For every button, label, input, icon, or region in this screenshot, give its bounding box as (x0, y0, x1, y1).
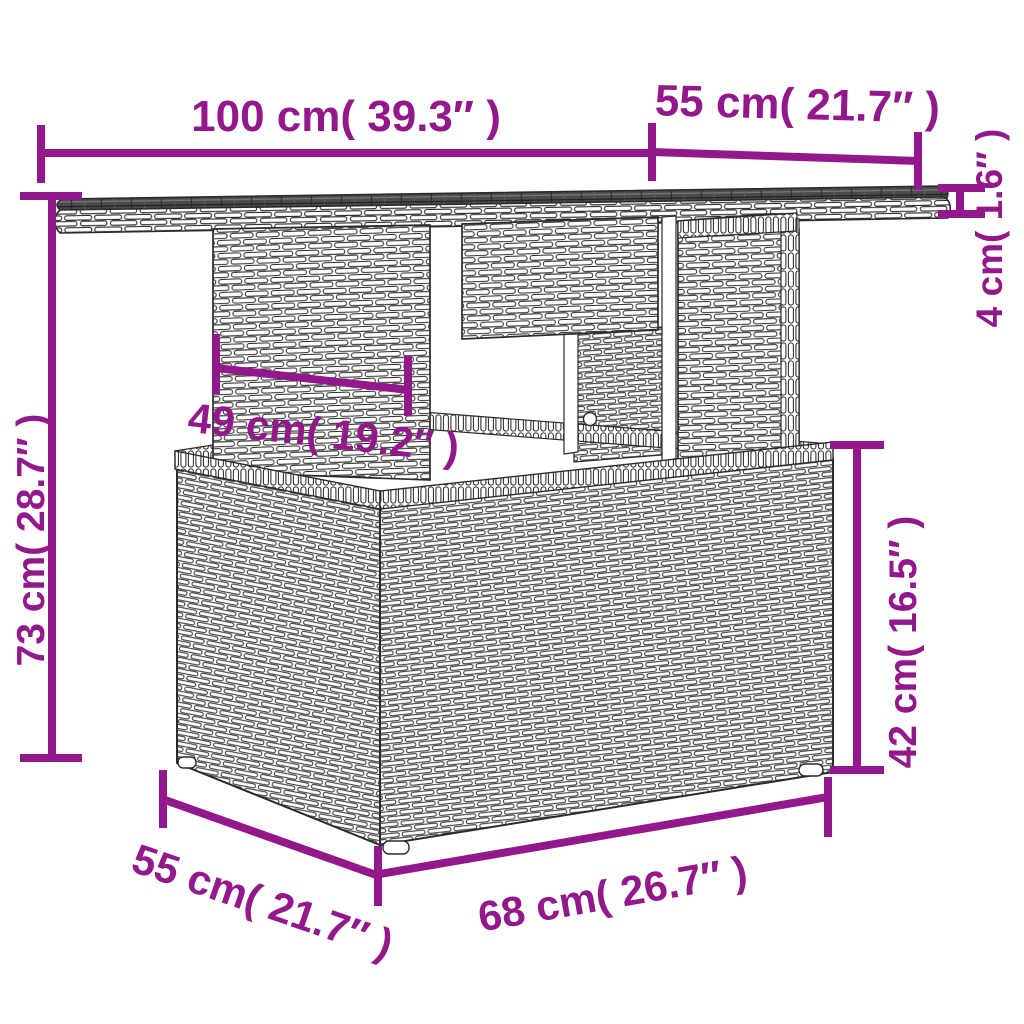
pedestal-column-edge-coil (781, 215, 799, 454)
base-right-face (380, 459, 833, 845)
table-dimension-drawing: 100 cm( 39.3″ ) 55 cm( 21.7″ ) 4 cm( 1.6… (0, 0, 1024, 1024)
pedestal-knob (584, 413, 597, 426)
dimension-label: 55 cm( 21.7″ ) (126, 835, 399, 968)
base-foot-left (178, 757, 196, 768)
dimension-line (652, 152, 918, 161)
dimension-label: 100 cm( 39.3″ ) (191, 92, 501, 141)
dimension-top-width: 100 cm( 39.3″ ) (37, 92, 656, 183)
dimension-line (956, 184, 964, 218)
dimension-overall-height: 73 cm( 28.7″ ) (10, 192, 82, 762)
base-foot-right (799, 764, 823, 776)
base-box (175, 442, 833, 854)
pedestal-middle-panel (462, 217, 658, 339)
pedestal-gap-post (662, 216, 676, 464)
dimension-label: 42 cm( 16.5″ ) (882, 516, 925, 769)
product-dimension-diagram: 100 cm( 39.3″ ) 55 cm( 21.7″ ) 4 cm( 1.6… (0, 0, 1024, 1024)
tick (824, 777, 832, 837)
dimension-top-thickness: 4 cm( 1.6″ ) (938, 129, 1010, 328)
dimension-label: 55 cm( 21.7″ ) (654, 76, 940, 132)
dimension-top-depth: 55 cm( 21.7″ ) (652, 76, 941, 190)
dimension-line (41, 149, 652, 157)
dimension-label: 73 cm( 28.7″ ) (10, 414, 53, 667)
pedestal-corner-post (564, 330, 578, 454)
dimension-label: 4 cm( 1.6″ ) (969, 129, 1010, 328)
base-foot-front (383, 841, 409, 854)
dimension-label: 68 cm( 26.7″ ) (474, 847, 750, 941)
dimension-base-height: 42 cm( 16.5″ ) (830, 441, 925, 774)
base-left-face (177, 468, 380, 845)
dimension-line (853, 441, 861, 774)
tick (212, 334, 220, 394)
